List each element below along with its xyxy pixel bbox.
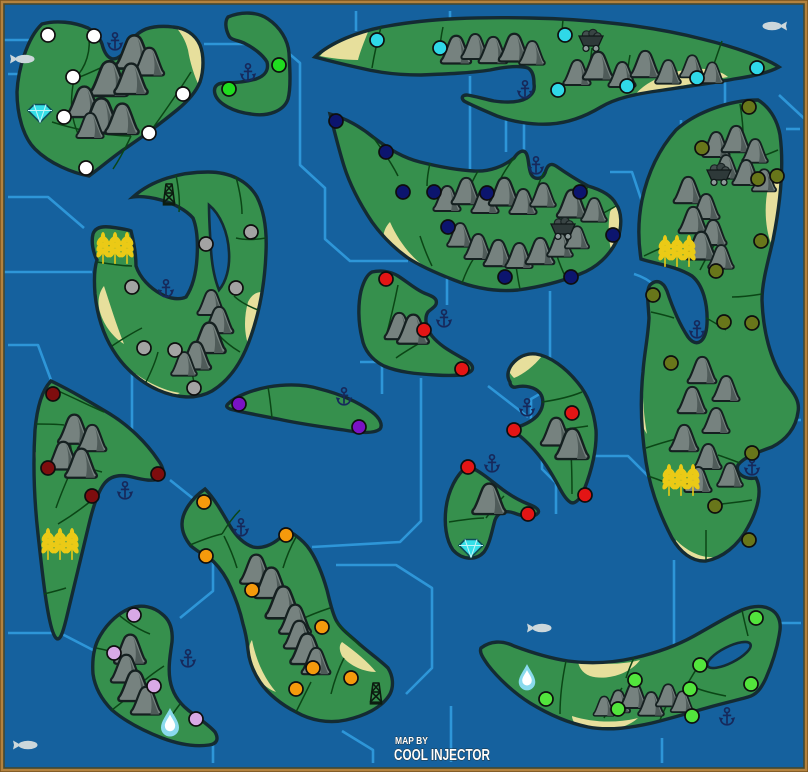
svg-text:COOL INJECTOR: COOL INJECTOR [394,747,490,764]
svg-text:MAP BY: MAP BY [395,736,428,747]
